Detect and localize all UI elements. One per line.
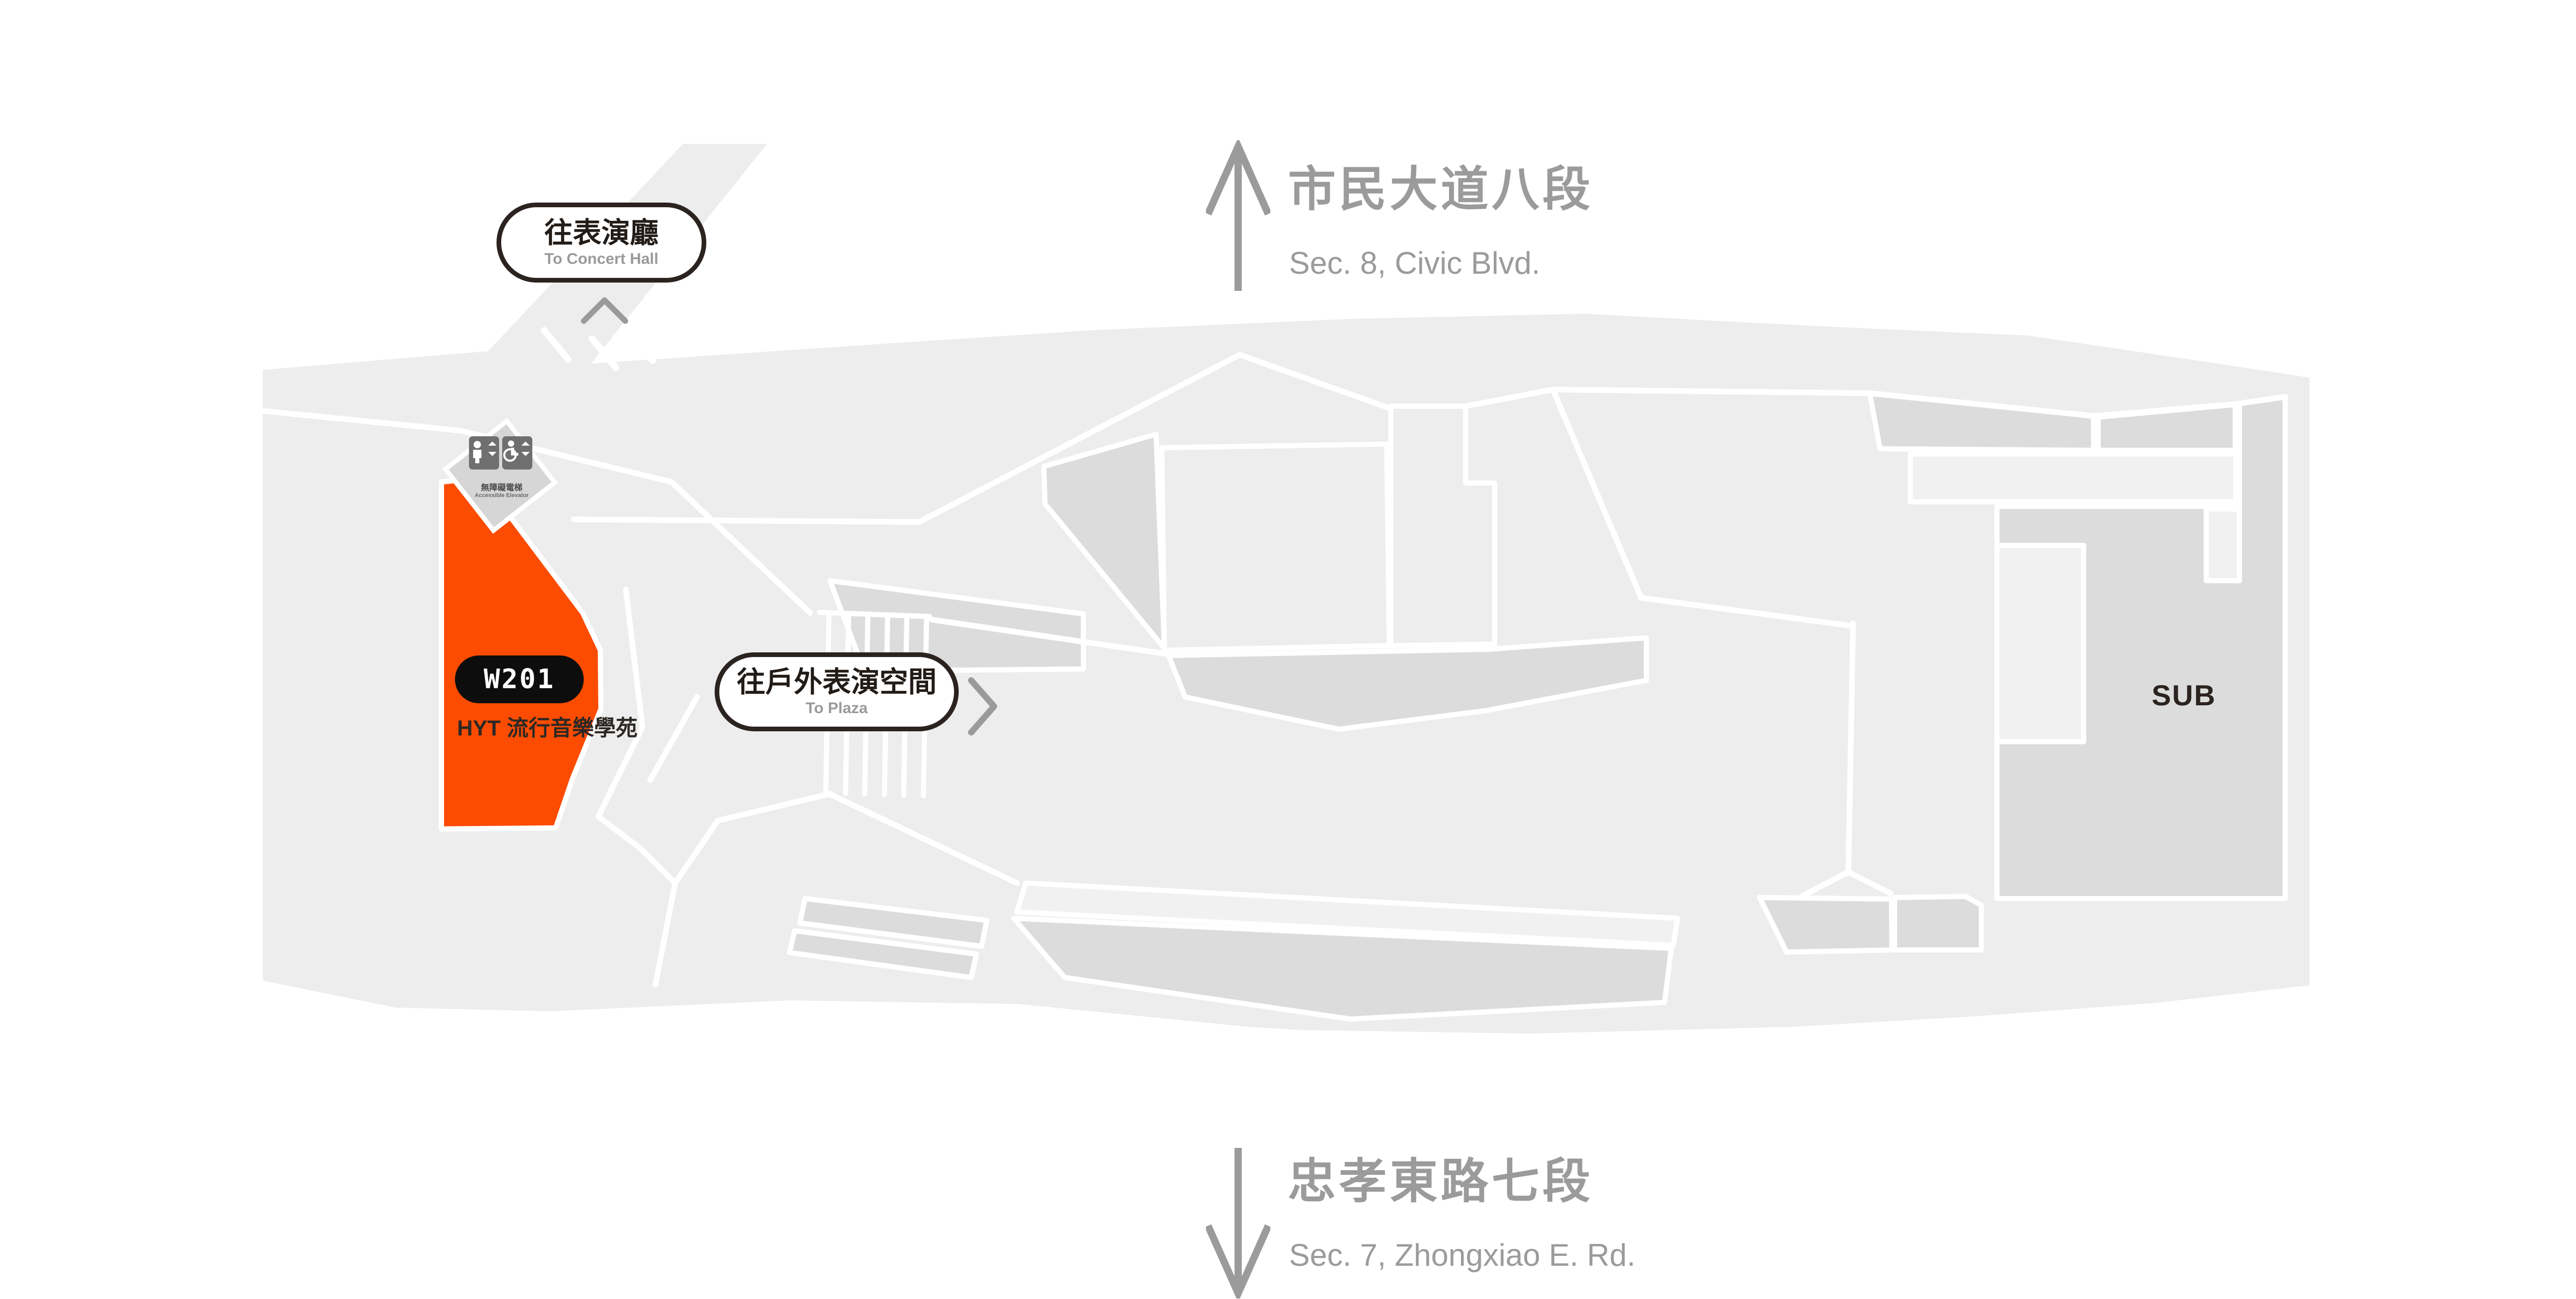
street-name-zh: 忠孝東路七段: [1288, 1143, 1593, 1212]
room-code: W201: [484, 664, 555, 695]
elevator-label-en: Accessible Elevator: [450, 492, 554, 499]
pill-label-zh: 往戶外表演空間: [736, 666, 936, 699]
street-name-en: Sec. 7, Zhongxiao E. Rd.: [1289, 1237, 1635, 1273]
wheelchair-elevator-icon: [502, 436, 532, 470]
pill-label-en: To Concert Hall: [544, 250, 658, 269]
pill-to-plaza[interactable]: 往戶外表演空間 To Plaza: [715, 652, 959, 731]
elevator-icon: [469, 436, 499, 470]
sub-area-label: SUB: [2145, 678, 2223, 712]
arrow-down-icon: [1206, 1148, 1270, 1298]
street-name-en: Sec. 8, Civic Blvd.: [1289, 245, 1540, 281]
street-name-zh: 市民大道八段: [1288, 151, 1593, 220]
floor-map-page: 市民大道八段 Sec. 8, Civic Blvd. 忠孝東路七段 Sec. 7…: [0, 0, 2576, 1299]
pill-label-en: To Plaza: [806, 699, 867, 718]
room-name: HYT 流行音樂學苑: [457, 711, 638, 742]
pill-label-zh: 往表演廳: [544, 217, 659, 249]
chevron-up-icon: [581, 296, 628, 324]
elevator-label-zh: 無障礙電梯: [450, 480, 554, 493]
arrow-up-icon: [1206, 140, 1270, 296]
room-code-pill[interactable]: W201: [455, 655, 584, 703]
chevron-right-icon: [967, 676, 999, 736]
pill-to-concert-hall[interactable]: 往表演廳 To Concert Hall: [497, 203, 706, 283]
